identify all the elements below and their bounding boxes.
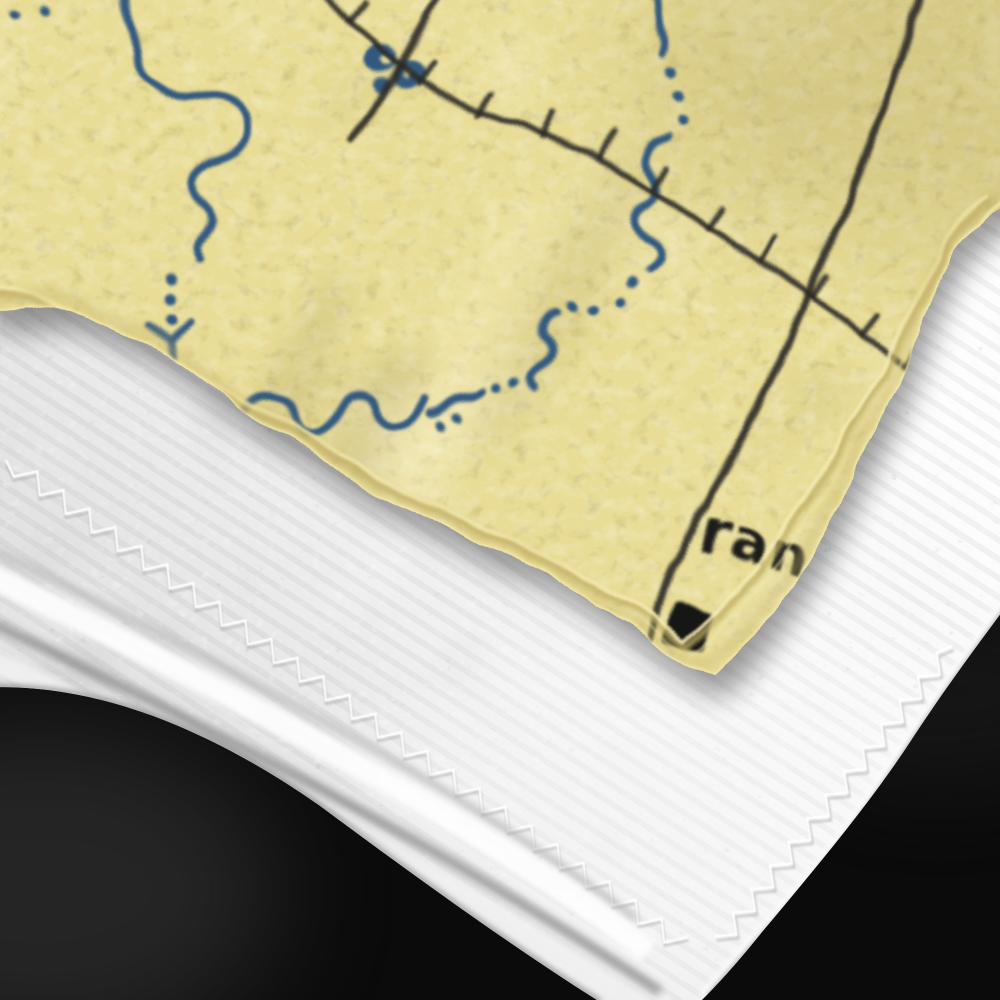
stream-dot [435,419,445,429]
stream-dot [165,316,177,328]
stream-dot [567,301,578,312]
stream-dot [667,67,678,78]
stream-dot [510,375,520,385]
stream-dot [493,381,503,391]
stream-dot [628,277,639,288]
stream-dot [166,274,178,286]
product-photo: ran [0,0,1000,1000]
stream-dot [453,411,463,421]
stream-dot [164,295,176,307]
product-photo-canvas: ran [0,0,1000,1000]
stream-dot [674,91,685,102]
stream-dot [587,305,598,316]
stream-dot [616,297,627,308]
stream-dot [10,9,20,19]
stream-dot [678,115,689,126]
stream-dot [39,3,49,13]
